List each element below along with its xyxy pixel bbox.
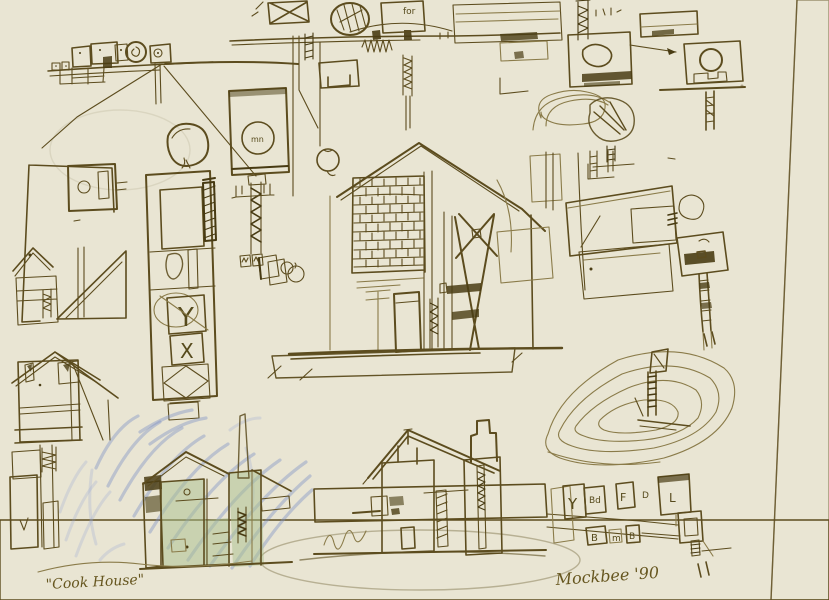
room-label-l: L [669,491,676,505]
circle-note-text: mn [251,135,264,144]
room-label-d: D [642,491,649,501]
plan-note-text: for [403,7,416,17]
room-label-m: m [612,534,621,544]
room-label-bd: Bd [589,496,601,506]
room-label-y: Y [567,495,578,513]
room-label-f: F [620,491,626,504]
sketch-photo: for [0,0,829,600]
strip-letter-x: X [180,339,194,363]
paper-background [0,0,829,600]
dark-block [103,56,112,68]
room-label-b1: B [591,533,598,544]
room-label-b2: B [629,532,635,542]
cook-house-sketch: for [0,0,829,600]
